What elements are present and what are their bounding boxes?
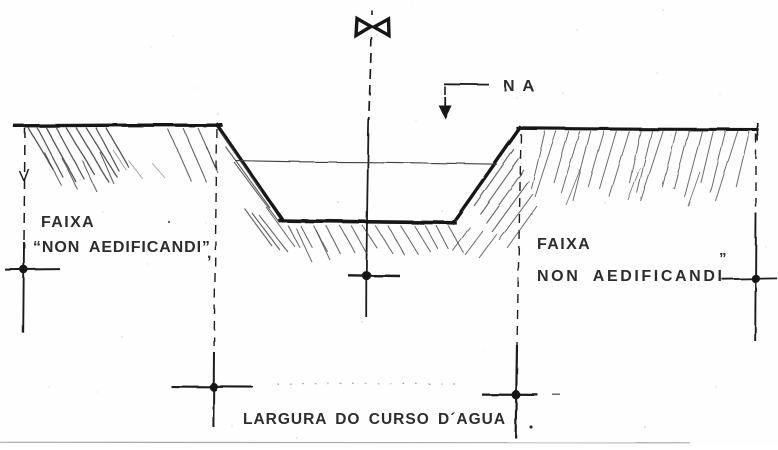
svg-text:LARGURA DO CURSO D´AGUA: LARGURA DO CURSO D´AGUA [243, 411, 506, 428]
svg-text:“NON AEDIFICANDI”: “NON AEDIFICANDI” [33, 239, 211, 256]
svg-text:N A: N A [503, 78, 536, 95]
svg-text:FAIXA: FAIXA [41, 214, 95, 231]
svg-text:,: , [207, 245, 211, 262]
svg-text:”: ” [719, 250, 727, 267]
svg-text:FAIXA: FAIXA [537, 236, 591, 253]
svg-text:NON AEDIFICANDI: NON AEDIFICANDI [537, 268, 725, 285]
